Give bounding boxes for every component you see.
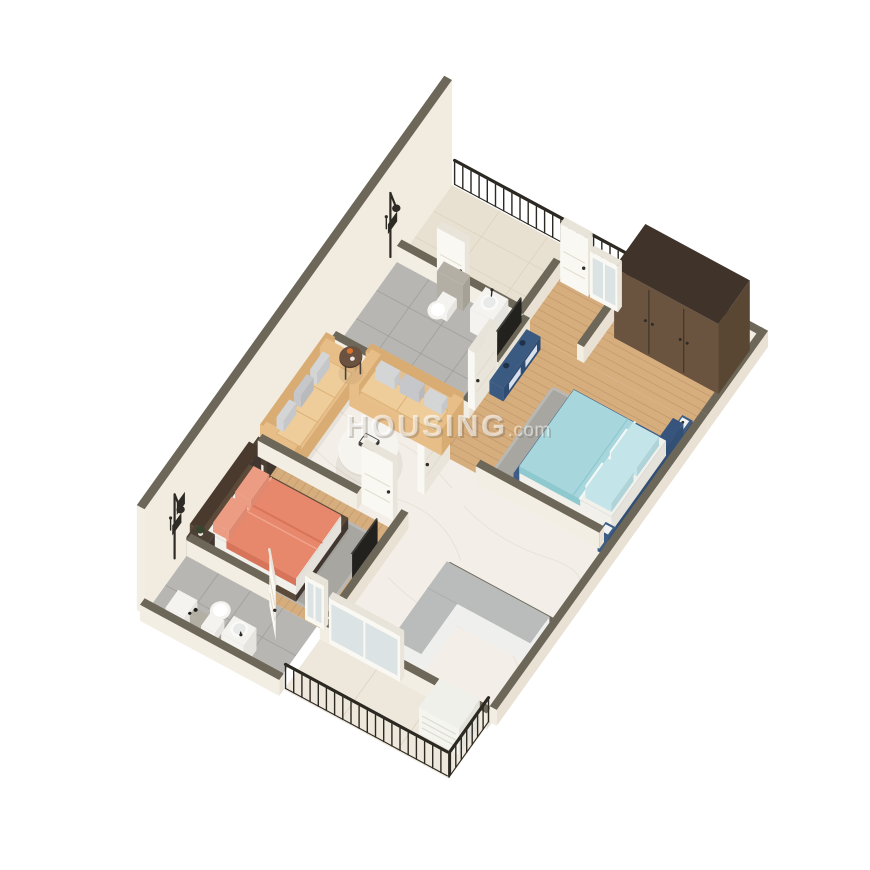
window <box>305 570 328 630</box>
floorplan-render-stage: HOUSING.com HOUSING.com <box>0 0 870 870</box>
floorplan-svg: HOUSING.com HOUSING.com <box>0 0 870 870</box>
